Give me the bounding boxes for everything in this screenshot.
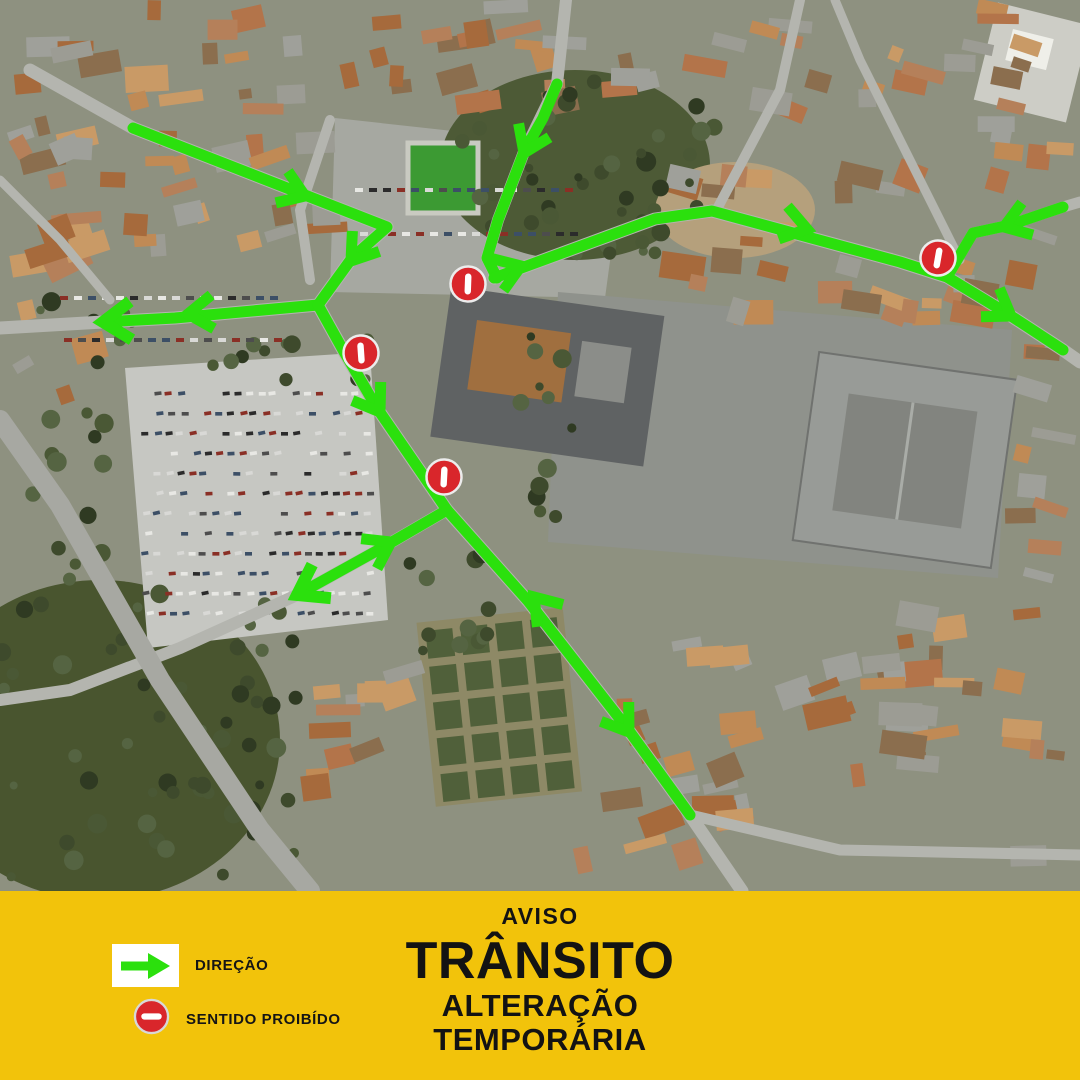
map-canvas <box>0 0 1080 891</box>
no-entry-sign-icon <box>426 459 463 496</box>
parking-lot <box>125 352 388 648</box>
legend-direction-label: DIREÇÃO <box>195 957 268 974</box>
legend-direction-row: DIREÇÃO <box>112 944 268 987</box>
direction-arrow-icon <box>112 944 179 987</box>
rossio-pond <box>408 143 478 213</box>
notice-banner: DIREÇÃO SENTIDO PROIBÍDO AVISO TRÂNSITO … <box>0 891 1080 1080</box>
aerial-map <box>0 0 1080 891</box>
notice-title-block: AVISO TRÂNSITO ALTERAÇÃO TEMPORÁRIA <box>280 905 800 1056</box>
notice-title: TRÂNSITO <box>280 934 800 989</box>
notice-subtitle-1: ALTERAÇÃO <box>280 989 800 1022</box>
notice-subtitle-2: TEMPORÁRIA <box>280 1023 800 1056</box>
no-entry-icon <box>133 998 170 1040</box>
traffic-notice-poster: DIREÇÃO SENTIDO PROIBÍDO AVISO TRÂNSITO … <box>0 0 1080 1080</box>
no-entry-sign-icon <box>450 266 486 302</box>
notice-label: AVISO <box>280 905 800 928</box>
no-entry-sign-icon <box>342 334 379 371</box>
